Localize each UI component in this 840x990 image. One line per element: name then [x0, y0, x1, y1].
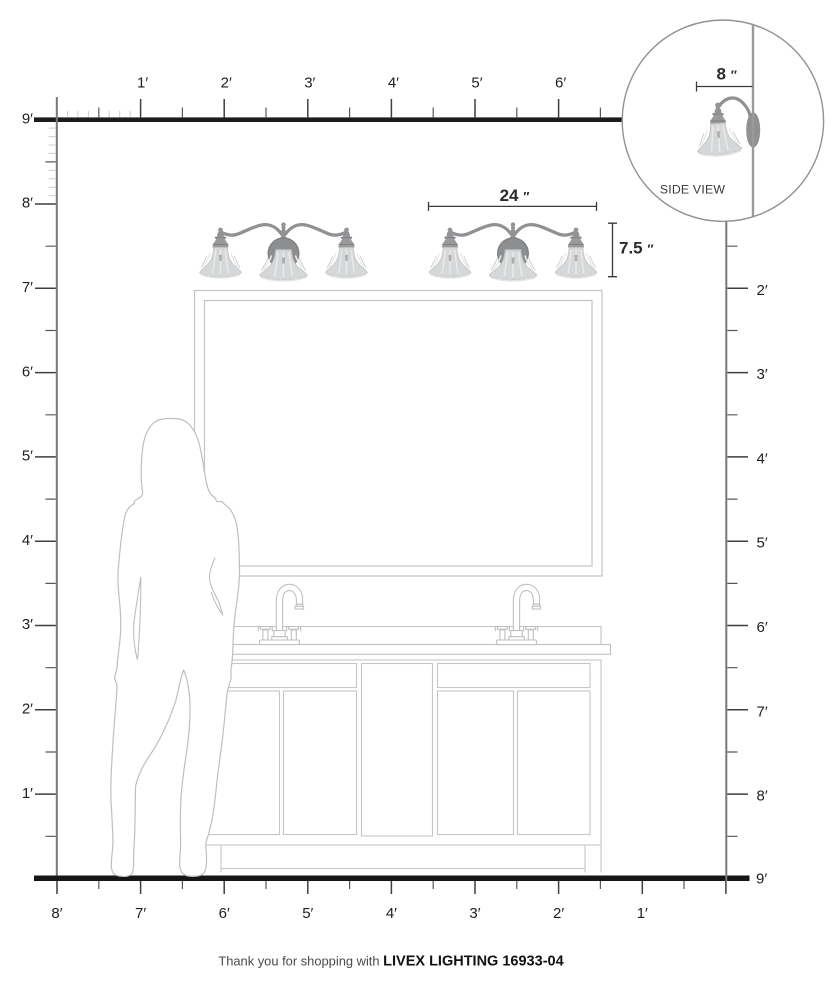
svg-text:1′: 1′ — [22, 785, 33, 802]
svg-text:3′: 3′ — [469, 905, 480, 922]
svg-text:7′: 7′ — [757, 703, 768, 720]
svg-text:Thank you for shopping with LI: Thank you for shopping with LIVEX LIGHTI… — [218, 954, 563, 970]
svg-text:4′: 4′ — [757, 450, 768, 467]
svg-text:5′: 5′ — [302, 905, 313, 922]
svg-text:1′: 1′ — [137, 75, 148, 92]
svg-text:6′: 6′ — [22, 363, 33, 380]
svg-text:3′: 3′ — [22, 616, 33, 633]
svg-text:2′: 2′ — [757, 282, 768, 299]
svg-text:3′: 3′ — [757, 366, 768, 383]
svg-text:3′: 3′ — [304, 75, 315, 92]
svg-text:4′: 4′ — [386, 905, 397, 922]
svg-text:9′: 9′ — [756, 871, 767, 888]
svg-text:SIDE VIEW: SIDE VIEW — [660, 183, 726, 197]
svg-text:6′: 6′ — [555, 75, 566, 92]
svg-text:8 ″: 8 ″ — [717, 65, 737, 84]
svg-text:9′: 9′ — [22, 110, 33, 127]
svg-text:7′: 7′ — [135, 905, 146, 922]
svg-text:8′: 8′ — [757, 788, 768, 805]
svg-text:8′: 8′ — [22, 195, 33, 212]
svg-text:2′: 2′ — [22, 701, 33, 718]
svg-text:4′: 4′ — [22, 532, 33, 549]
svg-text:5′: 5′ — [757, 535, 768, 552]
svg-text:6′: 6′ — [219, 905, 230, 922]
svg-text:8′: 8′ — [51, 905, 62, 922]
svg-text:6′: 6′ — [757, 619, 768, 636]
svg-text:24 ″: 24 ″ — [500, 186, 530, 205]
svg-text:1′: 1′ — [637, 905, 648, 922]
svg-text:7.5 ″: 7.5 ″ — [619, 239, 654, 258]
svg-text:5′: 5′ — [22, 448, 33, 465]
svg-text:7′: 7′ — [22, 279, 33, 296]
svg-text:2′: 2′ — [553, 905, 564, 922]
svg-text:2′: 2′ — [221, 75, 232, 92]
svg-text:5′: 5′ — [471, 75, 482, 92]
svg-text:4′: 4′ — [388, 75, 399, 92]
